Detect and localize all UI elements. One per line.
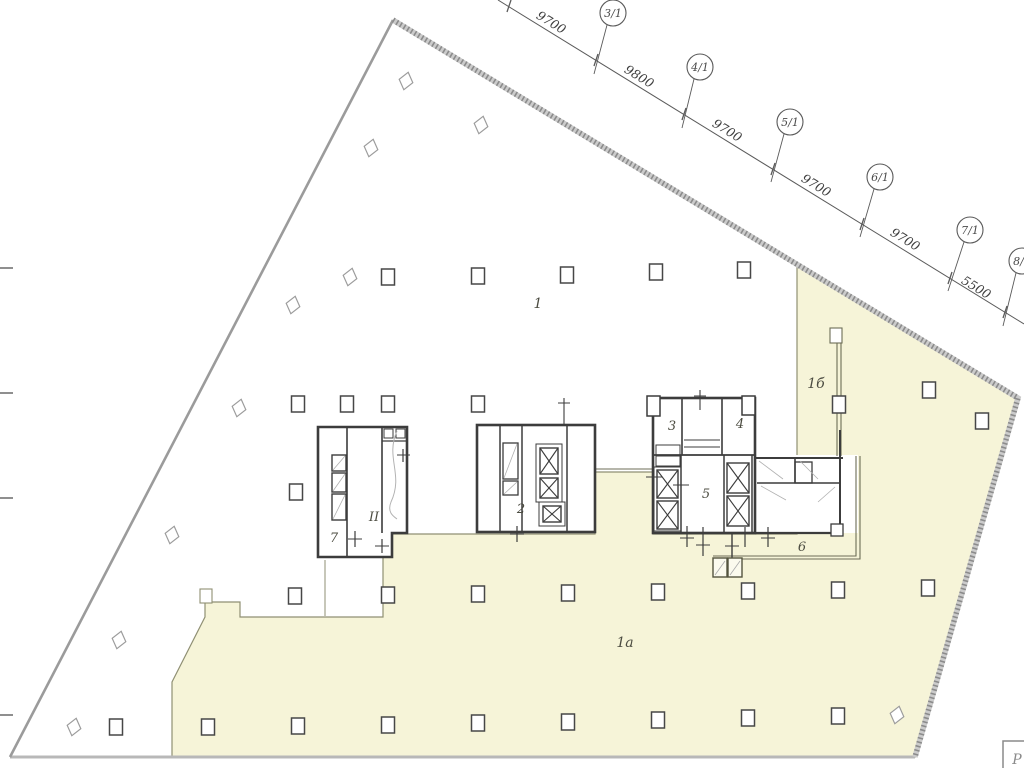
column-square [742,710,755,726]
column-square [382,717,395,733]
zone-1a-label: 1а [616,635,633,651]
column-square [923,382,936,398]
column-square [290,484,303,500]
dimension-value: 9700 [799,170,834,199]
room-2-label: 2 [516,502,525,517]
column-square [833,396,846,413]
dimension-value: 9700 [888,224,923,253]
axis-label: 3/1 [604,7,622,20]
axis-label: 6/1 [871,171,889,184]
axis-label: 4/1 [690,61,709,74]
column-square [650,264,663,280]
room-4-label: 4 [735,417,744,432]
column-square [561,267,574,283]
room-6-label: 6 [798,540,806,555]
room-3-label: 3 [668,419,676,434]
column-square [472,268,485,284]
dimension-value: 9800 [622,61,657,90]
column-square [652,712,665,728]
dimension-value: 5500 [959,272,994,301]
zone-1-label: 1 [534,296,543,312]
column-square [562,714,575,730]
corner-stamp-label: Р [1011,752,1022,768]
core-3-4-5 [646,390,775,556]
floor-plan-page: 3/1 4/1 5/1 6/1 7/1 8/1 9700 9800 9700 9… [0,0,1024,768]
riser-mark-label: II [368,510,380,525]
column-square [652,584,665,600]
column-square [472,396,485,412]
room-5-label: 5 [702,487,710,502]
axis-label: 5/1 [781,116,799,129]
left-grid-stubs [0,268,13,715]
column-square [472,715,485,731]
column-square [738,262,751,278]
core-right-white-pocket [755,455,858,533]
floor-plan-canvas: 3/1 4/1 5/1 6/1 7/1 8/1 9700 9800 9700 9… [0,0,1024,768]
column-square [292,396,305,412]
corner-stamp: Р [1003,741,1024,768]
dimension-value: 9700 [710,115,745,144]
column-square [382,587,395,603]
room-7-label: 7 [330,531,339,546]
column-square [832,582,845,598]
column-square [976,413,989,429]
zone-edge-tab [200,589,212,603]
column-square [562,585,575,601]
column-square [832,708,845,724]
axis-label: 8/1 [1013,255,1024,268]
axis-label: 7/1 [961,224,979,237]
column-square [382,396,395,412]
exterior-shaft-boxes [713,558,742,577]
column-square [382,269,395,285]
column-square [472,586,485,602]
column-square [922,580,935,596]
column-square [202,719,215,735]
column-square [742,583,755,599]
column-square [292,718,305,734]
zone-1b-wall-cap [830,328,842,343]
column-square [341,396,354,412]
column-square [289,588,302,604]
column-square [110,719,123,735]
zone-1b-label: 1б [807,376,825,392]
